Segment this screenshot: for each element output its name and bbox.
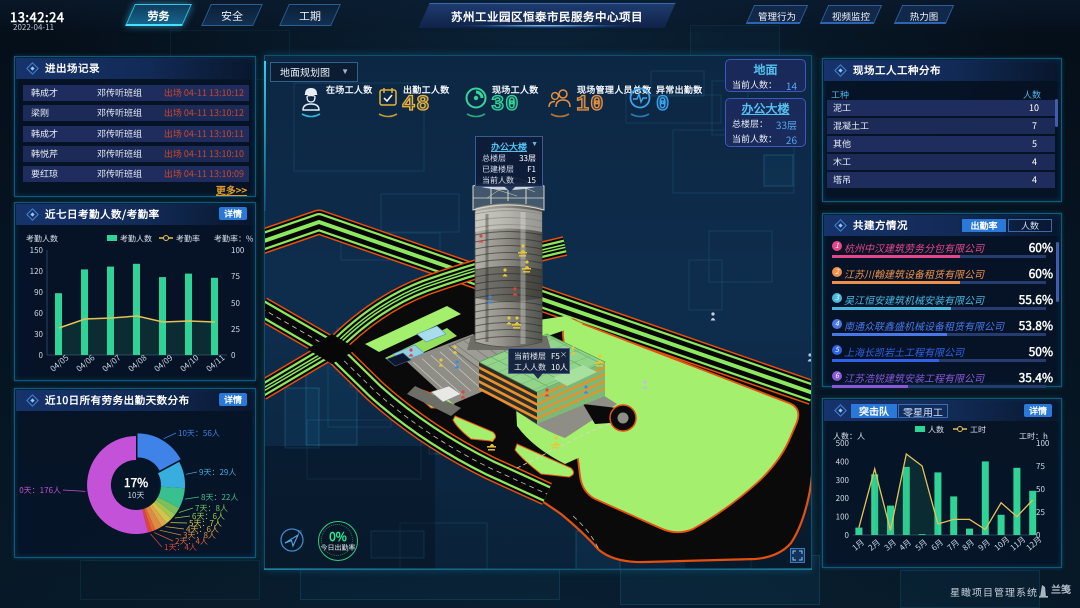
svg-text:10天: 10天 <box>128 490 145 501</box>
svg-text:90: 90 <box>34 287 43 298</box>
svg-text:0: 0 <box>231 350 236 361</box>
svg-text:400: 400 <box>836 456 850 467</box>
svg-text:30: 30 <box>34 329 43 340</box>
svg-text:150: 150 <box>30 245 44 256</box>
svg-text:考勤率：%: 考勤率：% <box>214 234 254 245</box>
svg-text:500: 500 <box>836 438 850 449</box>
svg-text:1月: 1月 <box>850 537 867 553</box>
svg-text:12月: 12月 <box>1024 534 1044 553</box>
svg-text:人数: 人数 <box>928 425 944 436</box>
svg-text:75: 75 <box>1036 461 1045 472</box>
svg-text:300: 300 <box>836 475 850 486</box>
svg-text:考勤率: 考勤率 <box>176 234 200 245</box>
svg-text:9天：29人: 9天：29人 <box>199 467 236 478</box>
svg-text:75: 75 <box>231 271 240 282</box>
svg-text:100: 100 <box>836 512 850 523</box>
svg-text:100: 100 <box>1036 438 1050 449</box>
svg-text:04/11: 04/11 <box>204 353 227 375</box>
svg-text:兰笺: 兰笺 <box>1051 581 1071 596</box>
svg-text:9月: 9月 <box>976 537 993 553</box>
svg-text:0: 0 <box>845 530 850 541</box>
svg-text:60: 60 <box>34 308 43 319</box>
svg-text:8月: 8月 <box>960 537 977 553</box>
svg-text:04/05: 04/05 <box>48 353 71 375</box>
svg-text:04/08: 04/08 <box>126 352 150 374</box>
svg-text:6月: 6月 <box>929 537 946 553</box>
svg-text:考勤人数: 考勤人数 <box>26 234 58 245</box>
svg-text:04/07: 04/07 <box>100 352 124 374</box>
svg-text:10天：56人: 10天：56人 <box>178 428 220 439</box>
svg-text:04/10: 04/10 <box>178 352 202 374</box>
svg-text:1天：4人: 1天：4人 <box>164 542 197 553</box>
svg-text:25: 25 <box>231 324 240 335</box>
svg-text:4月: 4月 <box>897 537 914 553</box>
svg-text:50: 50 <box>1036 484 1045 495</box>
svg-text:04/06: 04/06 <box>74 352 98 374</box>
svg-text:5月: 5月 <box>913 537 930 553</box>
svg-text:2月: 2月 <box>866 537 883 553</box>
svg-text:04/09: 04/09 <box>152 353 175 375</box>
svg-text:17%: 17% <box>124 474 148 491</box>
svg-text:100: 100 <box>231 245 245 256</box>
svg-text:25: 25 <box>1036 507 1045 518</box>
svg-text:120: 120 <box>30 266 44 277</box>
svg-text:考勤人数: 考勤人数 <box>120 234 152 245</box>
svg-text:200: 200 <box>836 493 850 504</box>
svg-text:0: 0 <box>39 350 44 361</box>
svg-text:N: N <box>298 529 302 536</box>
svg-text:8天：22人: 8天：22人 <box>201 492 238 503</box>
svg-text:工时: 工时 <box>970 425 986 436</box>
svg-text:50: 50 <box>231 298 240 309</box>
svg-text:0天：176人: 0天：176人 <box>19 485 61 496</box>
